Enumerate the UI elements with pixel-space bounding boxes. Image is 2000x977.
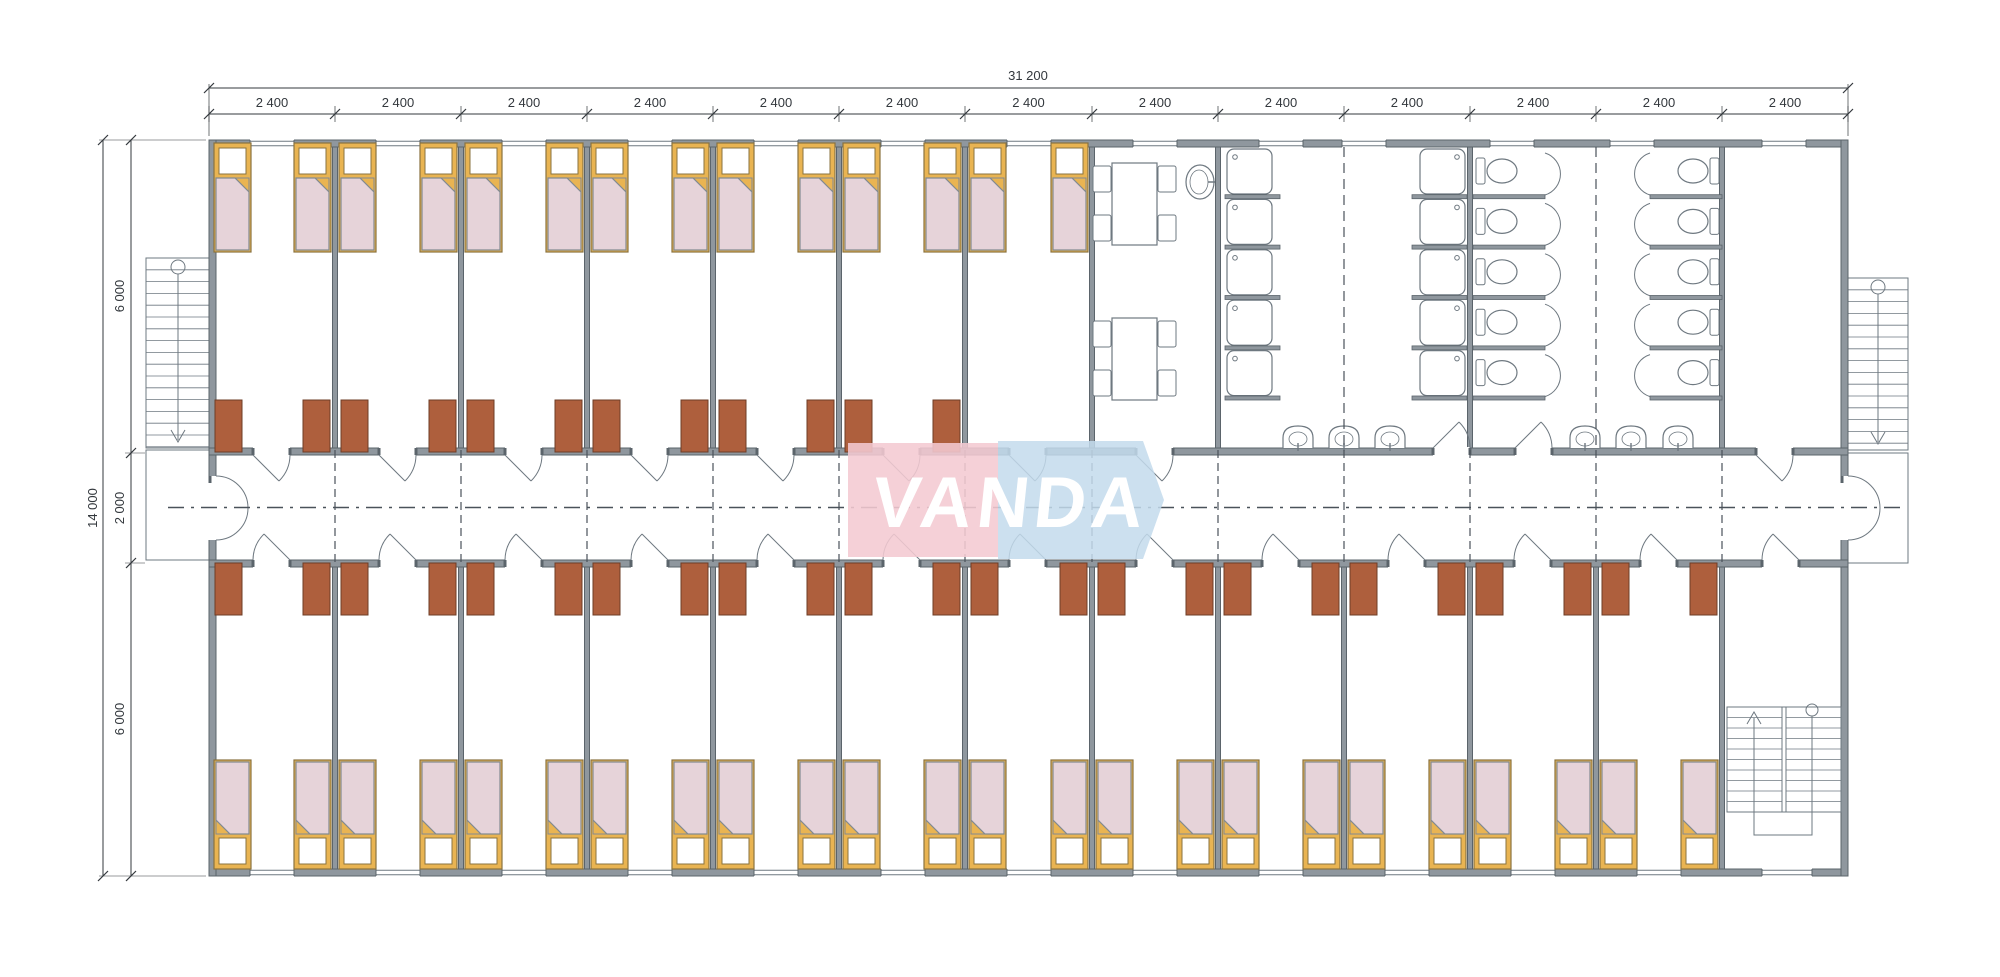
dimension-label: 2 000 [112,492,127,525]
bed [843,760,880,869]
bed-blanket [1098,762,1131,834]
door-jamb [1676,560,1679,567]
chair [1158,370,1176,396]
door-jamb [541,448,544,455]
bed [1600,760,1637,869]
bed-pillow [1227,838,1254,864]
stall-door-swing [1545,254,1560,296]
shower-tray [1420,149,1465,194]
dimension-label: 6 000 [112,703,127,736]
toilet-stall [1635,153,1719,195]
door-swing [657,455,668,481]
bed-blanket [800,178,833,250]
door-jamb [630,560,633,567]
bed-pillow [722,148,749,174]
bed-pillow [219,148,246,174]
door-swing [1762,534,1773,560]
bed-pillow [929,148,956,174]
bed-blanket [216,762,249,834]
bed [1051,760,1088,869]
door-swing [405,455,416,481]
bed-blanket [422,178,455,250]
partition-north [585,147,590,448]
bed [672,760,709,869]
stall-partition [1225,346,1280,350]
door-leaf [1773,534,1799,560]
bed [591,760,628,869]
bed-blanket [1305,762,1338,834]
wardrobe [429,400,456,452]
toilet-stall [1635,254,1719,296]
stall-door-swing [1545,153,1560,195]
wardrobe [215,400,242,452]
stall-partition [1412,245,1467,249]
bed-blanket [1476,762,1509,834]
partition-south [963,567,968,869]
chair [1158,166,1176,192]
stall-partition [1412,396,1467,400]
wardrobe [303,400,330,452]
window-opening [1133,139,1177,148]
shower-tray [1227,250,1272,295]
door-jamb [1798,560,1801,567]
window-opening [1490,139,1534,148]
bed [1303,760,1340,869]
stall-partition [1473,296,1545,300]
stall-partition [1412,195,1467,199]
wardrobe [593,563,620,615]
shower-stall [1420,149,1465,194]
bed-pillow [1101,838,1128,864]
bed [294,760,331,869]
toilet-bowl [1678,209,1708,233]
door-leaf [390,534,416,560]
toilet-tank [1476,259,1485,285]
window-opening [754,868,798,877]
bed-pillow [677,148,704,174]
door-jamb [793,560,796,567]
bed [465,760,502,869]
bed-blanket [296,178,329,250]
bed [924,760,961,869]
window-opening [881,868,925,877]
dimension-label: 2 400 [1391,95,1424,110]
door-leaf [1756,455,1782,481]
wardrobe [1602,563,1629,615]
door-jamb [541,560,544,567]
door-jamb [1841,476,1844,483]
door-leaf [264,534,290,560]
wardrobe [1224,563,1251,615]
stall-partition [1650,296,1722,300]
toilet-tank [1710,309,1719,335]
bed-blanket [719,178,752,250]
door-swing [531,455,542,481]
door-jamb [415,448,418,455]
door-opening [253,559,290,568]
wardrobe [971,563,998,615]
bed [420,143,457,252]
stall-door-swing [1635,355,1650,397]
toilet-tank [1476,360,1485,386]
window-opening [881,139,925,148]
bed [924,143,961,252]
door-jamb [1551,448,1554,455]
dimension-label: 31 200 [1008,68,1048,83]
door-jamb [252,560,255,567]
shower-stall [1227,250,1272,295]
bed [1429,760,1466,869]
bed [465,143,502,252]
shower-stall [1227,149,1272,194]
door-opening [1136,559,1173,568]
door-swing [1162,455,1173,481]
stall-door-swing [1545,355,1560,397]
stall-partition [1412,346,1467,350]
bed [420,760,457,869]
bed [969,143,1006,252]
bed-blanket [926,762,959,834]
dimension-label: 2 400 [508,95,541,110]
dining-table [1112,318,1157,400]
shower-tray [1227,351,1272,396]
bed [798,760,835,869]
bed-blanket [971,762,1004,834]
bed-blanket [971,178,1004,250]
window-opening [502,868,546,877]
bed-pillow [551,148,578,174]
bed-blanket [1179,762,1212,834]
chair [1093,370,1111,396]
bed-blanket [719,762,752,834]
bed-blanket [216,178,249,250]
window-opening [1610,139,1654,148]
bed-pillow [1479,838,1506,864]
window-opening [1007,139,1051,148]
door-jamb [756,560,759,567]
bed-pillow [677,838,704,864]
door-jamb [378,560,381,567]
stall-partition [1473,396,1545,400]
window-opening [1133,868,1177,877]
shower-tray [1420,300,1465,345]
bed [1681,760,1718,869]
dimension-label: 2 400 [1012,95,1045,110]
drawing-sheet: 31 2002 4002 4002 4002 4002 4002 4002 40… [0,0,2000,977]
wardrobe [1350,563,1377,615]
bed-blanket [845,762,878,834]
door-jamb [1172,448,1175,455]
bed-blanket [1053,762,1086,834]
partition-south [837,567,842,869]
door-leaf [1651,534,1677,560]
wardrobe [429,563,456,615]
window-opening [502,139,546,148]
shower-tray [1420,199,1465,244]
door-jamb [793,448,796,455]
door-leaf [768,534,794,560]
door-jamb [756,448,759,455]
bed-blanket [1350,762,1383,834]
door-leaf [757,455,783,481]
bed-blanket [800,762,833,834]
door-jamb [289,448,292,455]
bed-blanket [296,762,329,834]
toilet-tank [1476,309,1485,335]
door-leaf [642,534,668,560]
wardrobe [719,563,746,615]
door-opening [379,447,416,456]
toilet-tank [1710,208,1719,234]
door-opening [505,559,542,568]
stall-partition [1650,396,1722,400]
bed [214,143,251,252]
bed-blanket [926,178,959,250]
toilet-bowl [1678,159,1708,183]
bed [717,760,754,869]
bed [672,143,709,252]
wardrobe [1690,563,1717,615]
window-opening [376,139,420,148]
toilet-stall [1476,203,1560,245]
bed-pillow [1686,838,1713,864]
bed-pillow [344,838,371,864]
floor-plan-canvas: 31 2002 4002 4002 4002 4002 4002 4002 40… [0,0,2000,977]
window-opening [1007,868,1051,877]
bed [1474,760,1511,869]
wardrobe [719,400,746,452]
bed-pillow [596,148,623,174]
toilet-bowl [1487,310,1517,334]
toilet-stall [1476,304,1560,346]
partition-north [1216,147,1221,448]
toilet-bowl [1487,361,1517,385]
dimension-label: 14 000 [85,488,100,528]
shower-stall [1227,351,1272,396]
wardrobe [807,400,834,452]
stall-partition [1225,296,1280,300]
wardrobe [933,563,960,615]
bed-pillow [974,148,1001,174]
dimension-label: 2 400 [634,95,667,110]
door-swing [279,455,290,481]
door-leaf [253,455,279,481]
double-door-swing [216,476,248,508]
stair-divider [1782,707,1786,812]
partition-south [333,567,338,869]
wardrobe [215,563,242,615]
door-opening [505,447,542,456]
wash-basin [1375,426,1405,451]
wardrobe [681,400,708,452]
vanda-logo: VANDA [848,441,1164,559]
door-jamb [1135,560,1138,567]
window-opening [1259,139,1303,148]
door-leaf [379,455,405,481]
wardrobe [1186,563,1213,615]
window-opening [1762,139,1806,148]
partition-north [333,147,338,448]
door-swing [1782,455,1793,481]
partition-north [837,147,842,448]
dimension-label: 2 400 [1139,95,1172,110]
door-leaf [505,455,531,481]
bed-pillow [1605,838,1632,864]
window-opening [1385,868,1429,877]
stair-landing [146,450,210,560]
bed-pillow [1056,148,1083,174]
shower-stall [1420,250,1465,295]
bed [339,143,376,252]
door-swing [631,534,642,560]
bed-blanket [341,178,374,250]
wardrobe [681,563,708,615]
door-jamb [378,448,381,455]
door-opening [253,447,290,456]
wardrobe [1476,563,1503,615]
bed [1096,760,1133,869]
toilet-stall [1635,304,1719,346]
wardrobe [593,400,620,452]
door-opening [379,559,416,568]
window-opening [250,868,294,877]
window-opening [1762,868,1812,877]
door-swing [757,534,768,560]
bed [843,143,880,252]
shower-stall [1420,351,1465,396]
window-opening [376,868,420,877]
door-swing [379,534,390,560]
door-jamb [504,560,507,567]
door-opening [1262,559,1299,568]
bed [1348,760,1385,869]
door-leaf [1515,422,1541,448]
door-opening [757,559,794,568]
toilet-stall [1635,203,1719,245]
shower-tray [1227,149,1272,194]
door-jamb [1432,448,1435,455]
bed [798,143,835,252]
dimension-label: 2 400 [1517,95,1550,110]
bed [591,143,628,252]
bed-blanket [593,762,626,834]
wardrobe [467,400,494,452]
door-leaf [1273,534,1299,560]
door-swing [505,534,516,560]
partition-south [585,567,590,869]
dimension-label: 2 400 [1643,95,1676,110]
partition-south [1216,567,1221,869]
chair [1093,215,1111,241]
door-jamb [1639,560,1642,567]
door-opening [1756,447,1793,456]
stall-door-swing [1635,153,1650,195]
stall-partition [1473,346,1545,350]
bed [214,760,251,869]
toilet-bowl [1487,209,1517,233]
bed-pillow [1434,838,1461,864]
door-jamb [630,448,633,455]
chair [1158,321,1176,347]
wardrobe [1060,563,1087,615]
bed-pillow [344,148,371,174]
wash-basin [1663,426,1693,451]
toilet-bowl [1678,310,1708,334]
bed [294,143,331,252]
door-swing [1640,534,1651,560]
toilet-bowl [1678,361,1708,385]
wardrobe [555,400,582,452]
dimension-label: 2 400 [382,95,415,110]
stall-partition [1473,245,1545,249]
wardrobe [467,563,494,615]
partition-south [1342,567,1347,869]
bed-pillow [470,838,497,864]
window-opening [628,139,672,148]
toilet-stall [1635,355,1719,397]
internal-stair [1727,704,1841,835]
shower-stall [1420,199,1465,244]
wardrobe [341,400,368,452]
bed-blanket [467,178,500,250]
bed-blanket [1602,762,1635,834]
stall-partition [1473,195,1545,199]
door-jamb [289,560,292,567]
bed-pillow [848,838,875,864]
stall-partition [1225,396,1280,400]
wash-basin [1283,426,1313,451]
door-jamb [1045,560,1048,567]
partition-north [711,147,716,448]
door-jamb [1172,560,1175,567]
bed-pillow [299,148,326,174]
chair [1093,166,1111,192]
shower-stall [1227,199,1272,244]
toilet-bowl [1487,260,1517,284]
door-jamb [919,560,922,567]
logo-text: VANDA [869,463,1153,543]
bed-pillow [974,838,1001,864]
bed-pillow [803,148,830,174]
bed-blanket [593,178,626,250]
shower-stalls [1225,149,1467,400]
bed-blanket [674,178,707,250]
bed [1177,760,1214,869]
bed-blanket [1557,762,1590,834]
toilet-tank [1710,158,1719,184]
door-opening [1515,447,1552,456]
toilet-stall [1476,254,1560,296]
door-leaf [1433,422,1459,448]
door-jamb [667,560,670,567]
dining-sink [1186,165,1215,199]
bed-pillow [425,148,452,174]
shower-tray [1420,351,1465,396]
door-opening [631,559,668,568]
door-leaf [516,534,542,560]
door-jamb [504,448,507,455]
bed-pillow [219,838,246,864]
dimension-label: 2 400 [886,95,919,110]
stall-partition [1225,195,1280,199]
door-jamb [1513,560,1516,567]
shower-tray [1420,250,1465,295]
dining-table [1112,163,1157,245]
door-jamb [1387,560,1390,567]
door-leaf [1525,534,1551,560]
door-jamb [252,448,255,455]
bed-pillow [299,838,326,864]
